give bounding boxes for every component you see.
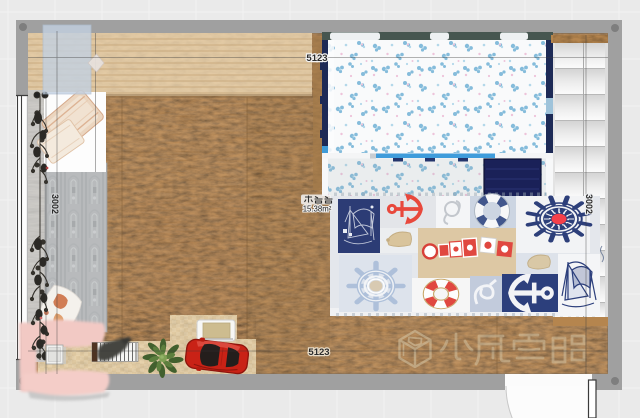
svg-text:3002: 3002 [50,194,60,214]
svg-text:5123: 5123 [306,53,327,64]
svg-text:3002: 3002 [584,194,594,214]
svg-text:15.38m²: 15.38m² [303,205,332,214]
svg-text:5123: 5123 [308,347,329,358]
